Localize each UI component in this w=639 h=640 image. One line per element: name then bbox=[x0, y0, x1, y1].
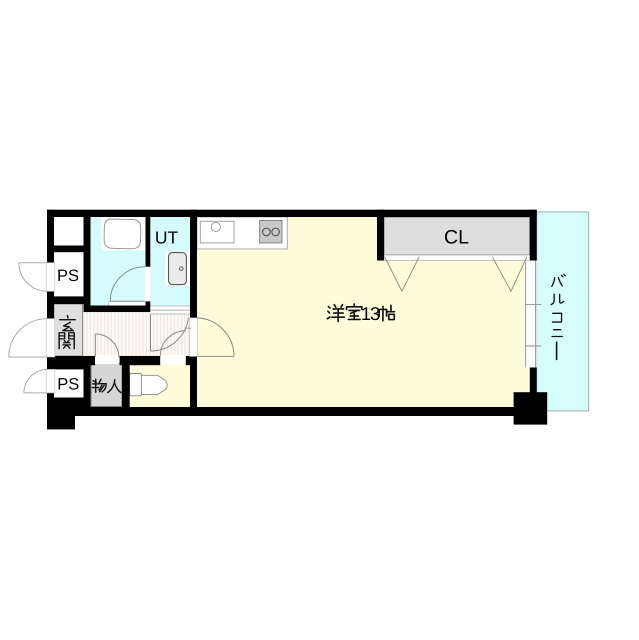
svg-text:PS: PS bbox=[57, 267, 79, 285]
svg-text:13: 13 bbox=[361, 303, 380, 324]
svg-text:PS: PS bbox=[57, 376, 79, 394]
svg-text:UT: UT bbox=[155, 227, 179, 247]
svg-text:CL: CL bbox=[444, 227, 469, 249]
